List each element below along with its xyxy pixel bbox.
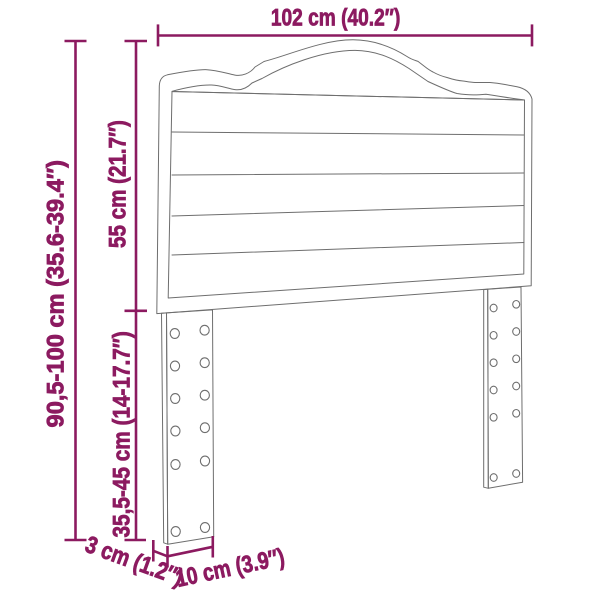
svg-text:102 cm (40.2″): 102 cm (40.2″) <box>271 3 400 31</box>
svg-text:35,5-45 cm (14-17.7″): 35,5-45 cm (14-17.7″) <box>108 331 135 537</box>
svg-text:90,5-100 cm (35.6-39.4″): 90,5-100 cm (35.6-39.4″) <box>42 160 69 428</box>
svg-text:55 cm (21.7″): 55 cm (21.7″) <box>104 120 131 248</box>
